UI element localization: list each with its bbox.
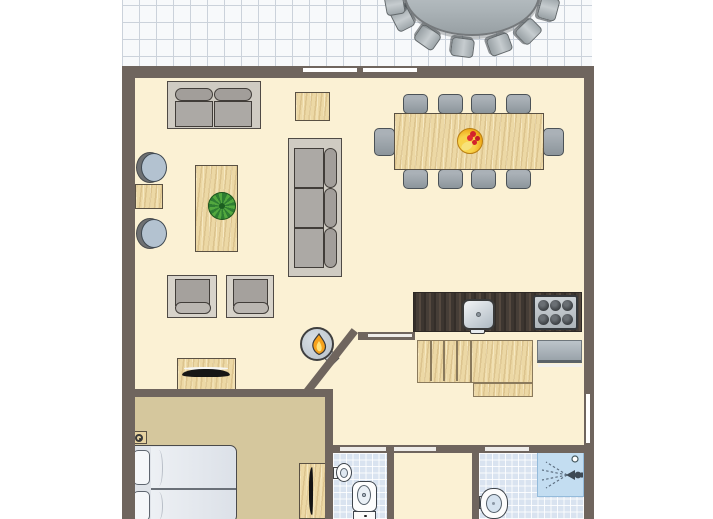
- armchair: [167, 275, 217, 318]
- bedroom-desk: [299, 463, 328, 519]
- terrace-chair: [383, 0, 406, 16]
- wc-door: [340, 447, 386, 451]
- sofa-seat-cushion: [294, 148, 324, 188]
- terrace-tiled-patio: [122, 0, 592, 66]
- kitchen-sink: [462, 299, 495, 330]
- potted-plant: [208, 192, 236, 220]
- toilet-tank: [353, 511, 376, 519]
- sofa-back-cushion: [175, 88, 213, 101]
- wall-hall-bathroom: [472, 453, 479, 519]
- stair-treads: [417, 340, 471, 383]
- terrace-chair: [449, 36, 474, 58]
- pillow: [133, 491, 150, 519]
- terrace-chair: [536, 0, 560, 22]
- terrace-chair: [485, 31, 513, 57]
- shower: [537, 452, 584, 497]
- dining-chair: [471, 169, 496, 189]
- stair-lower-step: [473, 383, 533, 397]
- shower-spray-icon: [538, 453, 583, 496]
- sofa-back-cushion: [214, 88, 252, 101]
- dining-chair: [403, 169, 428, 189]
- sofa-seat-cushion: [294, 188, 324, 228]
- terrace-window: [303, 68, 357, 72]
- wall-top: [122, 66, 593, 78]
- round-chair: [136, 218, 167, 249]
- dining-chair: [438, 94, 463, 114]
- wc-hand-basin: [336, 463, 352, 482]
- armchair: [226, 275, 274, 318]
- bathroom-basin: [480, 488, 508, 519]
- dining-chair: [403, 94, 428, 114]
- bathroom-door: [485, 447, 529, 451]
- tv-icon: [182, 369, 230, 377]
- wall-right: [584, 66, 594, 519]
- sofa-seat-cushion: [214, 101, 252, 127]
- terrace-window: [363, 68, 417, 72]
- round-chair: [136, 152, 167, 183]
- fruit-bowl: [457, 128, 483, 154]
- stair-landing: [471, 340, 533, 383]
- sofa-two-seat: [167, 81, 261, 129]
- sofa-seat-cushion: [175, 101, 213, 127]
- floor-plan: [0, 0, 713, 519]
- sofa-back-cushion: [324, 188, 337, 228]
- lounge-side-table: [135, 184, 163, 209]
- sofa-back-cushion: [324, 148, 337, 188]
- sofa-seat-cushion: [294, 228, 324, 268]
- stove-cooktop: [533, 295, 578, 330]
- dining-chair: [374, 128, 395, 156]
- kitchen-appliance: [537, 340, 582, 363]
- toilet: [352, 481, 377, 512]
- dining-chair: [543, 128, 564, 156]
- dining-chair: [471, 94, 496, 114]
- double-bed: [130, 445, 237, 519]
- dining-chair: [438, 169, 463, 189]
- wall-wc-hall: [387, 453, 394, 519]
- pillow: [133, 450, 150, 485]
- kitchen-opening: [368, 334, 412, 337]
- wall-left: [122, 66, 135, 519]
- sofa-three-seat: [288, 138, 342, 277]
- sofa-back-cushion: [324, 228, 337, 268]
- dining-chair: [506, 94, 531, 114]
- hall-door: [394, 447, 436, 451]
- dining-chair: [506, 169, 531, 189]
- side-table: [295, 92, 330, 121]
- appliance-edge: [538, 364, 582, 367]
- right-wall-window: [586, 394, 590, 443]
- flame-icon: [309, 333, 329, 357]
- bedroom-tv-icon: [309, 467, 313, 515]
- wall-bedroom-right: [325, 389, 333, 519]
